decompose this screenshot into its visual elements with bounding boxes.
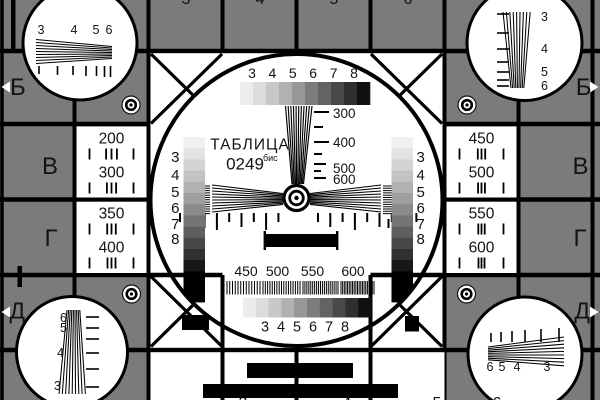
row-letter-left: Б	[10, 74, 26, 101]
gray-step	[331, 82, 344, 105]
strip-step	[184, 227, 206, 239]
label-corner_circles.top_right_labels.3: 6	[541, 79, 548, 93]
bullseye-dot	[130, 292, 133, 295]
row-letter-right: Г	[574, 225, 587, 252]
black-bar	[266, 234, 338, 247]
label-center.top_scale_labels.2: 5	[289, 65, 297, 81]
row-letter-right: В	[572, 153, 588, 180]
label-center.bottom_scale_labels.4: 7	[325, 320, 333, 336]
strip-step	[184, 260, 206, 272]
corner-circle-bottom-left: 6543	[17, 297, 128, 400]
top-edge-digit: 5	[330, 0, 339, 8]
label-center.right_strip_labels.0: 3	[417, 149, 425, 166]
top-left-line-fragment	[11, 0, 16, 53]
gray-step	[307, 298, 320, 318]
corner-circle-bottom-right: 6543	[468, 297, 582, 400]
label-side_cells.right.3: 600	[469, 240, 495, 257]
bottom-edge-digit: 5	[433, 395, 442, 400]
top-edge-digit: 3	[182, 0, 191, 8]
corner-circle-top-left: 3456	[23, 0, 137, 100]
label-center.bottom_scale_labels.5: 8	[341, 320, 349, 336]
label-center.bottom_scale_labels.1: 4	[277, 320, 285, 336]
gray-step	[266, 82, 279, 105]
strip-step	[392, 238, 414, 250]
strip-step	[184, 238, 206, 250]
corner-circle-bottom-right-outline	[468, 297, 582, 400]
gray-step	[279, 82, 292, 105]
strip-step	[392, 249, 414, 261]
label-center.left_strip_labels.2: 5	[171, 184, 179, 201]
gray-step	[344, 82, 357, 105]
row-letter-right: Д	[574, 298, 590, 324]
label-corner_circles.top_left_labels.3: 6	[106, 23, 113, 37]
label-center.wedge_tick_labels.3: 600	[333, 172, 356, 187]
strip-step	[184, 159, 206, 171]
gray-step	[256, 298, 269, 318]
label-side_cells.right.0: 450	[469, 131, 495, 148]
top-edge-digit: 6	[404, 0, 413, 8]
left-line-fragment	[18, 266, 23, 287]
label-corner_circles.top_right_labels.2: 5	[541, 65, 548, 79]
strip-step	[392, 182, 414, 194]
strip-step	[392, 148, 414, 160]
gray-step	[292, 82, 305, 105]
fan-line	[75, 310, 76, 394]
strip-step	[392, 171, 414, 183]
left-id-rect	[182, 315, 209, 330]
label-center.bottom_scale_labels.0: 3	[261, 320, 269, 336]
label-center.left_strip_labels.1: 4	[171, 167, 179, 184]
title-text: ТАБЛИЦА	[210, 137, 290, 154]
strip-step	[392, 137, 414, 149]
label-corner_circles.bottom_left_labels.1: 5	[60, 321, 67, 335]
label-side_cells.left.0: 200	[99, 131, 125, 148]
strip-step	[184, 148, 206, 160]
corner-circle-top-right: 3456	[467, 0, 582, 101]
gray-step	[240, 82, 253, 105]
strip-step	[184, 193, 206, 205]
label-corner_circles.top_right_labels.1: 4	[541, 42, 548, 56]
strip-step	[184, 171, 206, 183]
label-center.right_strip_labels.3: 6	[417, 200, 425, 217]
bullseye-dot	[465, 103, 468, 106]
gray-step	[269, 298, 282, 318]
strip-step	[184, 249, 206, 261]
gray-step	[357, 82, 370, 105]
gray-step	[333, 298, 346, 318]
label-center.wedge_tick_labels.1: 400	[333, 135, 356, 150]
label-center.right_strip_labels.1: 4	[417, 167, 425, 184]
test-card-svg: 345678ТАБЛИЦА0249бис30040050060045050055…	[0, 0, 600, 400]
card-number: 0249	[226, 155, 264, 174]
label-center.frequency_labels.2: 550	[301, 263, 325, 279]
strip-step	[392, 227, 414, 239]
label-corner_circles.bottom_right_labels.2: 4	[514, 360, 521, 374]
label-center.top_scale_labels.4: 7	[330, 65, 338, 81]
strip-step	[392, 159, 414, 171]
label-center.left_strip_labels.0: 3	[171, 149, 179, 166]
label-corner_circles.bottom_left_labels.2: 4	[57, 346, 64, 360]
strip-step	[184, 215, 206, 227]
label-center.left_strip_labels.3: 6	[171, 200, 179, 217]
gray-step	[281, 298, 294, 318]
bottom-bar-short	[247, 363, 353, 378]
label-center.top_scale_labels.1: 4	[269, 65, 277, 81]
label-corner_circles.top_left_labels.1: 4	[71, 23, 78, 37]
row-letter-left: В	[42, 153, 58, 180]
row-letter-right: Б	[576, 74, 592, 101]
label-side_cells.left.1: 300	[99, 165, 125, 182]
gray-step	[320, 298, 333, 318]
label-corner_circles.top_right_labels.0: 3	[541, 10, 548, 24]
gray-step	[243, 298, 256, 318]
label-center.frequency_labels.3: 600	[341, 263, 365, 279]
card-number-suffix: бис	[263, 153, 278, 163]
label-corner_circles.bottom_right_labels.1: 5	[499, 360, 506, 374]
top-edge-digit: 4	[256, 0, 265, 8]
bottom-bar-long	[203, 384, 398, 398]
label-center.frequency_labels.1: 500	[266, 263, 290, 279]
wedge-line	[296, 106, 297, 184]
label-center.frequency_labels.0: 450	[234, 263, 258, 279]
row-letter-left: Г	[45, 225, 58, 252]
strip-step	[392, 204, 414, 216]
gray-step	[294, 298, 307, 318]
label-center.bottom_scale_labels.3: 6	[309, 320, 317, 336]
strip-step	[392, 215, 414, 227]
tv-test-card: 345678ТАБЛИЦА0249бис30040050060045050055…	[0, 0, 600, 400]
fan-line	[36, 54, 112, 55]
target-dot	[294, 196, 298, 200]
label-center.left_strip_labels.5: 8	[171, 231, 179, 248]
strip-step	[392, 260, 414, 272]
row-letter-left: Д	[10, 298, 26, 324]
label-center.wedge_tick_labels.0: 300	[333, 106, 356, 121]
label-side_cells.left.2: 350	[99, 206, 125, 223]
label-side_cells.right.1: 500	[469, 165, 495, 182]
right-id-rect	[405, 316, 419, 332]
bottom-edge-digit: 6	[493, 395, 502, 400]
label-center.top_scale_labels.0: 3	[248, 65, 256, 81]
gray-step	[345, 298, 358, 318]
strip-step	[184, 182, 206, 194]
label-corner_circles.bottom_left_labels.3: 3	[54, 379, 61, 393]
strip-step	[184, 204, 206, 216]
bullseye-dot	[465, 292, 468, 295]
gray-step	[318, 82, 331, 105]
label-center.bottom_scale_labels.2: 5	[293, 320, 301, 336]
bullseye-dot	[129, 103, 132, 106]
label-center.right_strip_labels.5: 8	[417, 231, 425, 248]
label-corner_circles.bottom_right_labels.3: 3	[544, 360, 551, 374]
label-corner_circles.bottom_right_labels.0: 6	[487, 360, 494, 374]
label-side_cells.left.3: 400	[99, 240, 125, 257]
label-corner_circles.top_left_labels.2: 5	[93, 23, 100, 37]
gray-step	[358, 298, 371, 318]
label-corner_circles.top_left_labels.0: 3	[38, 23, 45, 37]
gray-step	[253, 82, 266, 105]
label-center.right_strip_labels.2: 5	[417, 184, 425, 201]
label-side_cells.right.2: 550	[469, 206, 495, 223]
strip-step	[392, 193, 414, 205]
strip-step	[184, 137, 206, 149]
gray-step	[305, 82, 318, 105]
label-center.top_scale_labels.3: 6	[309, 65, 317, 81]
